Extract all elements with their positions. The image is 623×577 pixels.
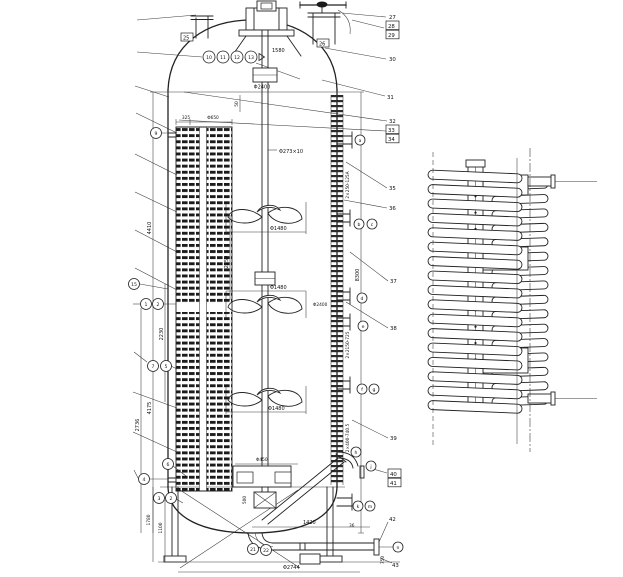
part-33: 33 xyxy=(388,128,395,134)
dim-2736: 2736 xyxy=(135,419,141,432)
dim-2230: 2230 xyxy=(159,328,165,341)
dim-phi450: Φ450 xyxy=(256,457,268,463)
part-32: 32 xyxy=(389,119,396,125)
flag-26: 26 xyxy=(317,39,329,48)
part-30: 30 xyxy=(389,57,396,63)
jacket-spec-2: 2×2150-725 xyxy=(345,331,351,358)
balloon-a: a xyxy=(359,139,362,144)
balloon-4: 4 xyxy=(143,477,146,483)
balloon-d: d xyxy=(361,296,364,302)
balloon-m: m xyxy=(368,505,373,510)
balloon-3: 3 xyxy=(158,496,161,502)
dim-shaft-spec: Φ273×10 xyxy=(279,149,303,155)
balloon-h: h xyxy=(355,450,358,456)
dim-phi2400-top: Φ2400 xyxy=(254,85,271,91)
part-numbers: 27 28 29 30 31 32 33 34 35 36 37 38 39 4… xyxy=(386,15,401,569)
dim-325: 325 xyxy=(182,115,190,121)
balloon-13: 13 xyxy=(248,55,254,61)
coil-detail-view xyxy=(428,148,597,452)
balloon-2-dup: 2 xyxy=(170,496,173,502)
balloon-j: j xyxy=(369,464,371,470)
vessel-ga-drawing: 25 26 10 11 12 13 xyxy=(0,0,623,577)
half-pipe-jacket xyxy=(331,95,343,485)
dim-phi2744: Φ2744 xyxy=(283,565,300,571)
part-28: 28 xyxy=(388,24,395,30)
balloon-21: 21 xyxy=(250,547,256,553)
dim-50: 50 xyxy=(234,101,240,107)
flag-26-label: 26 xyxy=(319,42,325,48)
balloon-e: e xyxy=(362,325,365,330)
part-31: 31 xyxy=(387,95,394,101)
dim-1100: 1100 xyxy=(158,522,164,533)
balloon-2: 2 xyxy=(157,302,160,308)
part-37: 37 xyxy=(390,279,397,285)
impeller-3 xyxy=(226,386,306,414)
dim-phi1480-2: Φ1480 xyxy=(270,285,287,291)
part-41: 41 xyxy=(390,481,397,487)
drive-stand xyxy=(232,1,301,56)
balloon-1: 1 xyxy=(145,302,148,308)
part-40: 40 xyxy=(390,472,397,478)
agitator-shaft xyxy=(240,30,277,500)
balloon-12: 12 xyxy=(234,55,240,61)
impeller-2 xyxy=(226,291,306,318)
dim-1780: 1780 xyxy=(146,514,152,525)
balloon-k: k xyxy=(357,504,360,510)
part-34: 34 xyxy=(388,137,395,143)
part-42: 42 xyxy=(389,517,396,523)
dim-500: 500 xyxy=(242,496,248,504)
part-29: 29 xyxy=(388,33,395,39)
jacket-spec-1: 2×250-125A xyxy=(345,171,351,198)
dim-4175: 4175 xyxy=(147,402,153,415)
part-43: 43 xyxy=(392,563,399,569)
bottom-balloons: 21 22 xyxy=(248,544,272,556)
balloon-6: 6 xyxy=(167,462,170,468)
part-38: 38 xyxy=(390,326,397,332)
skirt-support xyxy=(158,487,400,568)
balloon-n: n xyxy=(397,546,400,551)
impeller-1 xyxy=(226,202,306,234)
balloon-15: 15 xyxy=(131,282,137,288)
dim-phi650: Φ650 xyxy=(207,115,219,121)
flag-25-label: 25 xyxy=(183,36,189,42)
part-39: 39 xyxy=(390,436,397,442)
dim-2250: 2250 xyxy=(224,256,230,269)
nozzle-balloons: a b c d e f g h j k m n xyxy=(351,135,403,552)
head-balloon-row: 10 11 12 13 xyxy=(203,51,300,79)
balloon-10: 10 xyxy=(206,55,212,61)
flag-25: 25 xyxy=(181,33,193,42)
part-27: 27 xyxy=(389,15,396,21)
balloon-11: 11 xyxy=(220,55,226,61)
dim-750: 750 xyxy=(380,556,386,564)
balloon-22: 22 xyxy=(263,548,269,554)
dim-1580: 1580 xyxy=(272,48,285,54)
balloon-5: 5 xyxy=(165,364,168,370)
part-35: 35 xyxy=(389,186,396,192)
internal-coil-bundle xyxy=(168,127,232,491)
balloon-7: 7 xyxy=(152,364,155,370)
coil-front-turns xyxy=(428,170,522,413)
engineering-drawing-canvas: 25 26 10 11 12 13 xyxy=(0,0,623,577)
dim-1420: 1420 xyxy=(303,520,316,526)
top-left-nozzle xyxy=(191,16,213,38)
dim-phi1480-1: Φ1480 xyxy=(270,226,287,232)
part-36: 36 xyxy=(389,206,396,212)
dim-36: 36 xyxy=(349,523,355,529)
dim-phi2400-mid: Φ2400 xyxy=(313,302,328,308)
balloon-g: g xyxy=(373,388,376,393)
jacket-spec-3: 2×400-740.5 xyxy=(345,424,351,453)
manhole-davit xyxy=(300,2,350,45)
balloon-b: b xyxy=(358,222,361,228)
dim-4410: 4410 xyxy=(147,222,153,235)
balloon-9: 9 xyxy=(155,131,158,137)
dim-phi1480-3: Φ1480 xyxy=(268,406,285,412)
dim-8300: 8300 xyxy=(355,269,361,282)
